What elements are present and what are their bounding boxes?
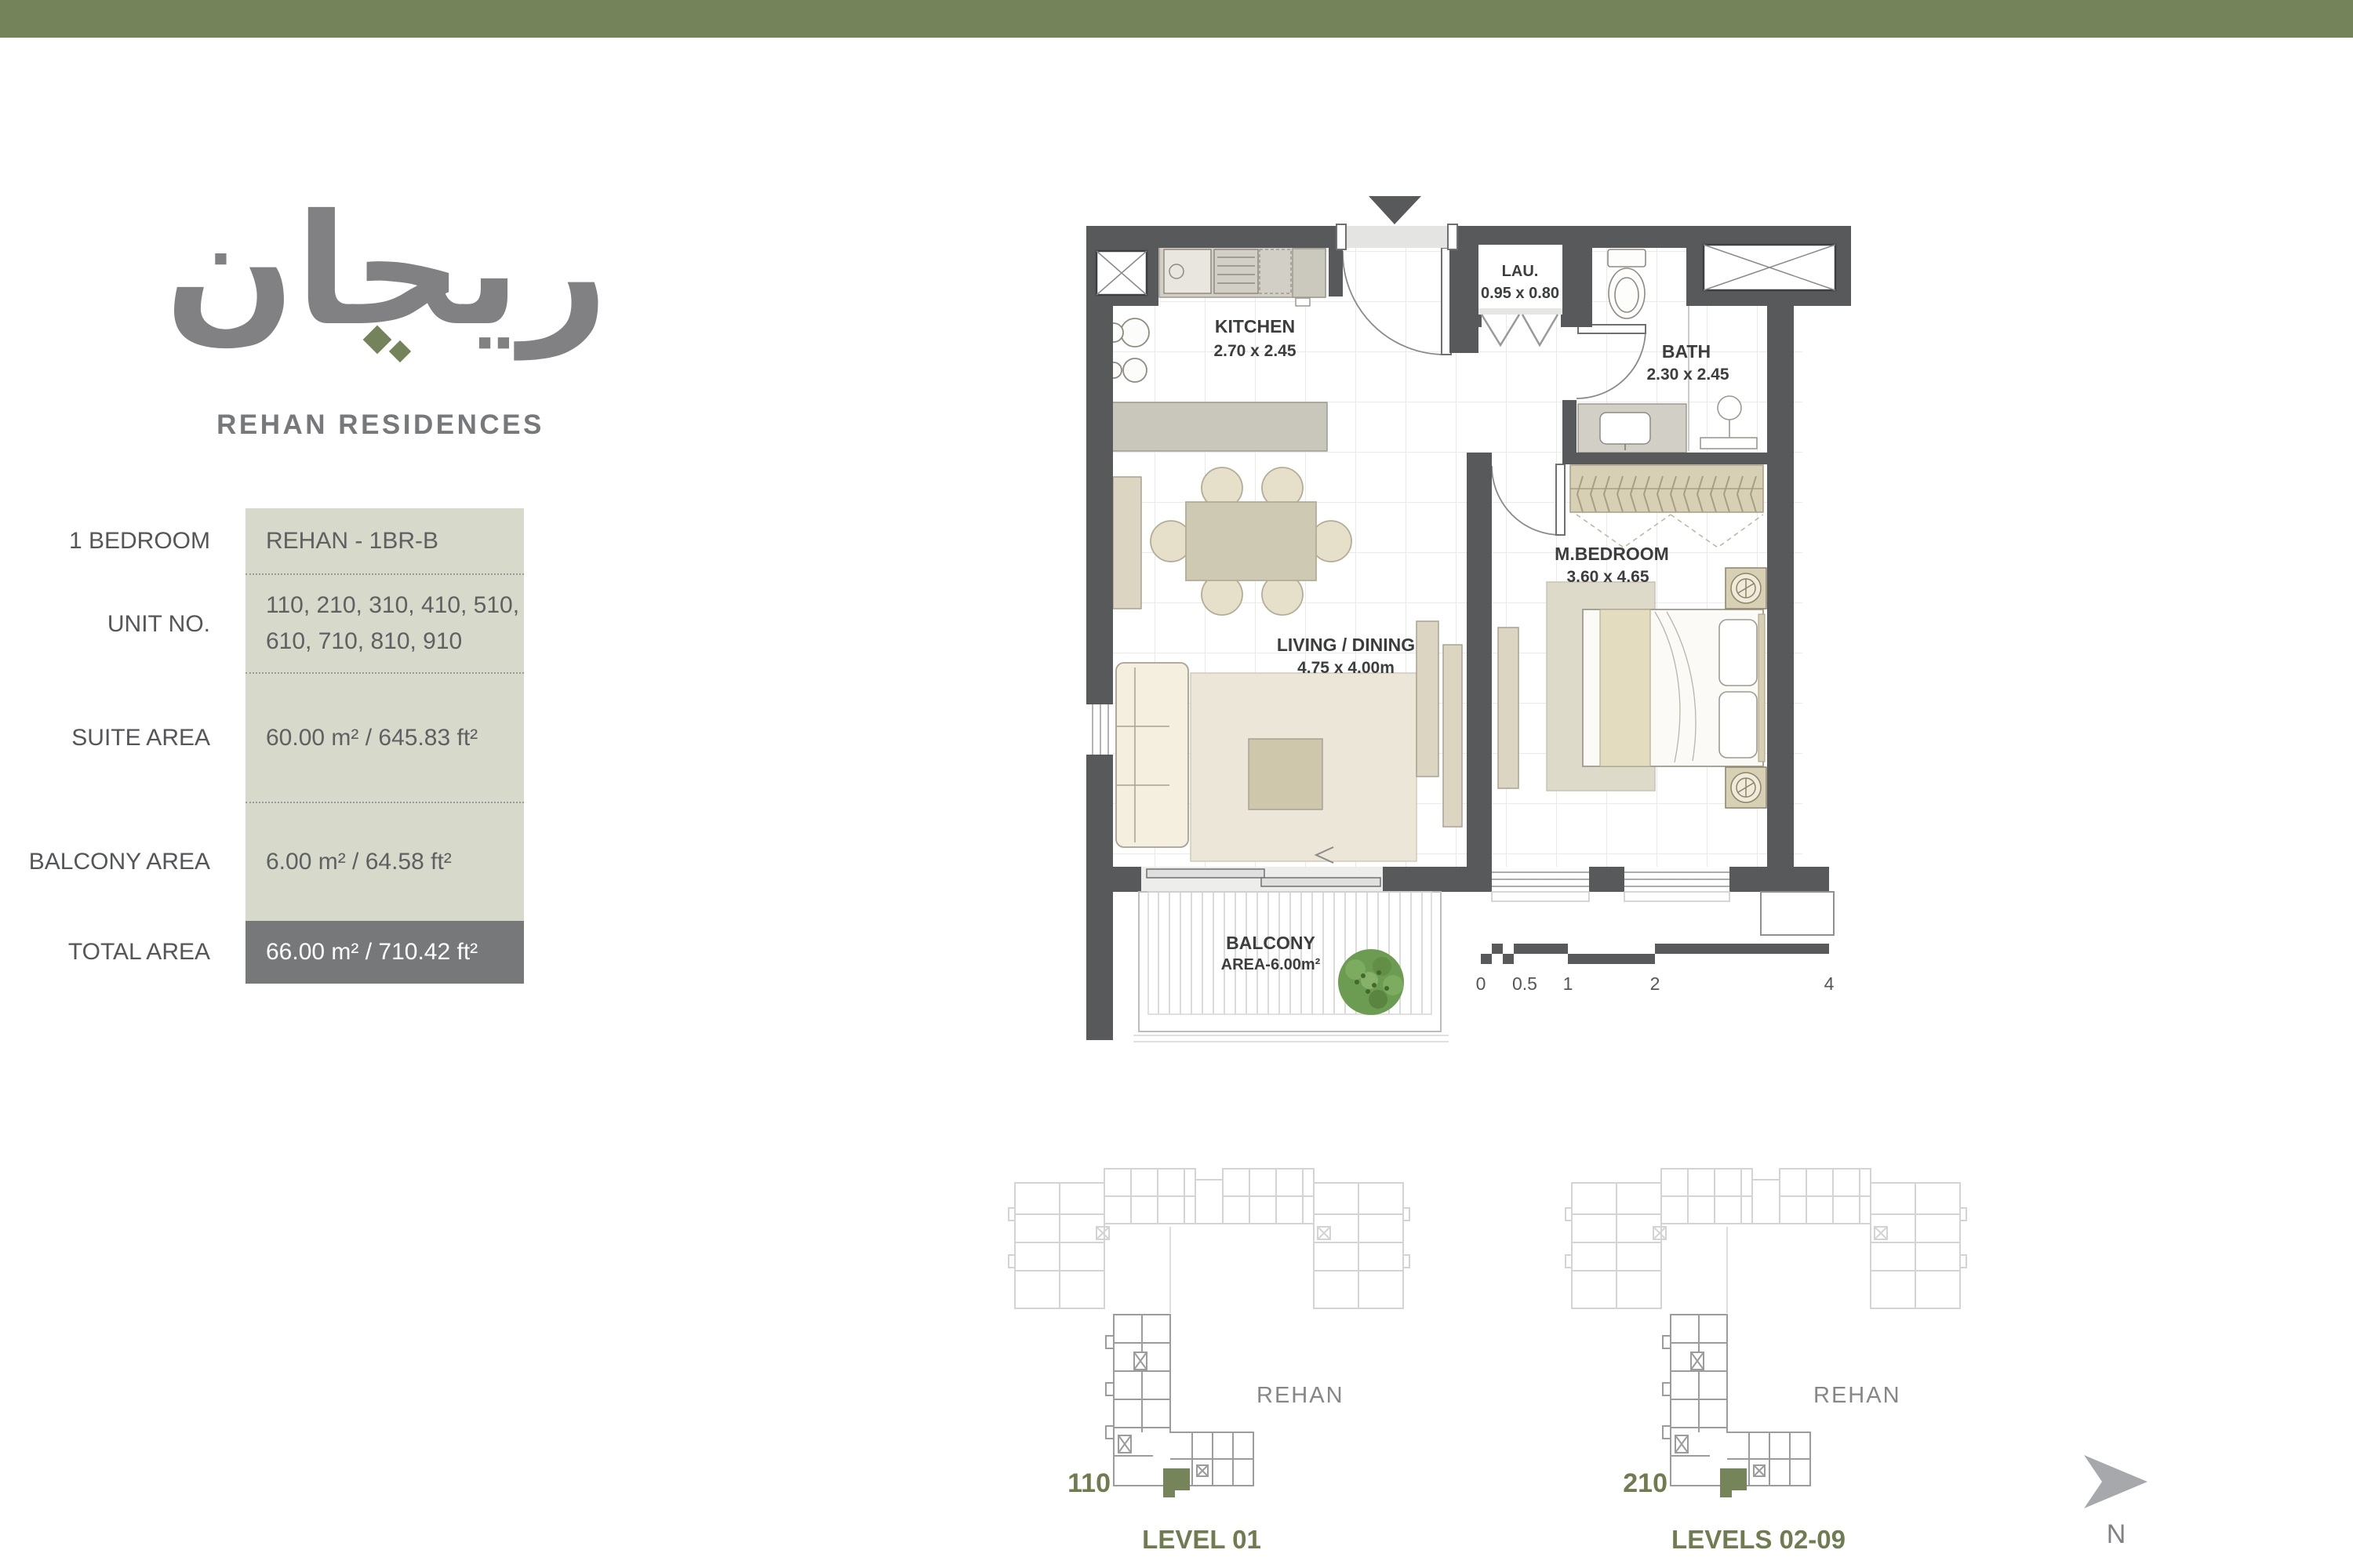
- spec-value-suite: 60.00 m² / 645.83 ft²: [245, 674, 524, 803]
- arabic-logo: ريحان: [165, 173, 596, 384]
- scale-tick-05: 0.5: [1512, 973, 1537, 994]
- level-caption: LEVELS 02-09: [1671, 1525, 1846, 1554]
- entry: [1337, 196, 1457, 249]
- bedroom-door-leaf: [1556, 464, 1565, 535]
- scale-tick-4: 4: [1824, 973, 1835, 994]
- spec-label-unit-no: UNIT NO.: [57, 593, 210, 656]
- spec-label-balcony-area: BALCONY AREA: [57, 831, 210, 893]
- exterior-step: [1761, 892, 1834, 935]
- bedroom-label: M.BEDROOM: [1555, 544, 1669, 564]
- kitchen-label: KITCHEN: [1215, 316, 1295, 337]
- kitchen-peninsula: [1111, 402, 1327, 451]
- toilet: [1608, 249, 1646, 318]
- sofa: [1116, 663, 1188, 847]
- spec-total-value: 66.00 m² / 710.42 ft²: [266, 939, 524, 966]
- laundry-label: LAU.: [1502, 263, 1539, 280]
- spec-balcony-value: 6.00 m² / 64.58 ft²: [266, 849, 524, 875]
- brand-wordmark: REHAN RESIDENCES: [165, 409, 596, 441]
- scale-tick-1: 1: [1563, 973, 1573, 994]
- unit-number: 110: [1067, 1468, 1111, 1498]
- pillow: [1719, 620, 1757, 686]
- coffee-table: [1249, 739, 1322, 809]
- building-name: REHAN: [1257, 1383, 1344, 1408]
- sliding-door-panel: [1147, 869, 1264, 878]
- tall-cabinet: [1113, 477, 1141, 609]
- header-band: [0, 0, 2353, 38]
- north-label: N: [2107, 1519, 2126, 1549]
- scale-tick-2: 2: [1650, 973, 1660, 994]
- sliding-door-panel: [1261, 878, 1380, 886]
- bath-label: BATH: [1662, 341, 1711, 362]
- level-key-plans: 110 REHAN LEVEL 01 210 REHAN LEVELS 02-0…: [1004, 1159, 2133, 1567]
- spec-label-total-area: TOTAL AREA: [57, 921, 210, 984]
- kitchen-sink: [1164, 249, 1211, 293]
- spec-value-total: 66.00 m² / 710.42 ft²: [245, 921, 524, 984]
- tv-console: [1417, 621, 1438, 777]
- level-caption: LEVEL 01: [1142, 1525, 1261, 1554]
- spec-units-line2: 610, 710, 810, 910: [266, 628, 524, 655]
- spec-suite-value: 60.00 m² / 645.83 ft²: [266, 725, 524, 751]
- balcony-dims: AREA-6.00m²: [1221, 956, 1321, 973]
- spec-value-type: REHAN - 1BR-B: [245, 508, 524, 575]
- balcony-label: BALCONY: [1226, 933, 1315, 953]
- spec-value-balcony: 6.00 m² / 64.58 ft²: [245, 803, 524, 921]
- living-label: LIVING / DINING: [1277, 635, 1415, 655]
- scale-tick-0: 0: [1476, 973, 1486, 994]
- kitchen-dims: 2.70 x 2.45: [1213, 342, 1296, 360]
- dresser: [1498, 628, 1518, 788]
- plant: [1338, 949, 1404, 1015]
- north-arrow-icon: [2084, 1455, 2148, 1508]
- living-dims: 4.75 x 4.00m: [1297, 659, 1395, 677]
- key-plan-levels-02-09: 210 REHAN LEVELS 02-09: [1566, 1169, 1966, 1554]
- unit-number: 210: [1623, 1468, 1667, 1498]
- laundry-dims: 0.95 x 0.80: [1481, 285, 1559, 302]
- bath-dims: 2.30 x 2.45: [1646, 366, 1729, 384]
- media-unit: [1443, 645, 1462, 827]
- floorplan-brochure-page: { "brand": { "logo": "ريحان", "wordmark"…: [0, 0, 2353, 1568]
- spec-table: REHAN - 1BR-B 110, 210, 310, 410, 510, 6…: [245, 508, 524, 984]
- spec-value-units: 110, 210, 310, 410, 510, 610, 710, 810, …: [245, 575, 524, 674]
- spec-type-value: REHAN - 1BR-B: [266, 528, 524, 555]
- spec-label-suite-area: SUITE AREA: [57, 707, 210, 769]
- pillow: [1719, 692, 1757, 758]
- spec-label-bedroom: 1 BEDROOM: [57, 510, 210, 573]
- floor-plan: KITCHEN 2.70 x 2.45 LAU. 0.95 x 0.80 BAT…: [1067, 188, 1898, 1059]
- north-indicator: N: [2071, 1447, 2173, 1553]
- scale-bar: 0 0.5 1 2 4: [1476, 944, 1835, 994]
- dining-table: [1186, 502, 1316, 580]
- building-name: REHAN: [1813, 1383, 1901, 1408]
- spec-units-line1: 110, 210, 310, 410, 510,: [266, 592, 524, 619]
- bedroom-dims: 3.60 x 4.65: [1566, 568, 1649, 586]
- vanity: [1578, 404, 1686, 453]
- key-plan-level-01: 110 REHAN LEVEL 01: [1009, 1169, 1409, 1554]
- bed: [1583, 609, 1765, 766]
- entry-triangle-marker: [1369, 196, 1421, 224]
